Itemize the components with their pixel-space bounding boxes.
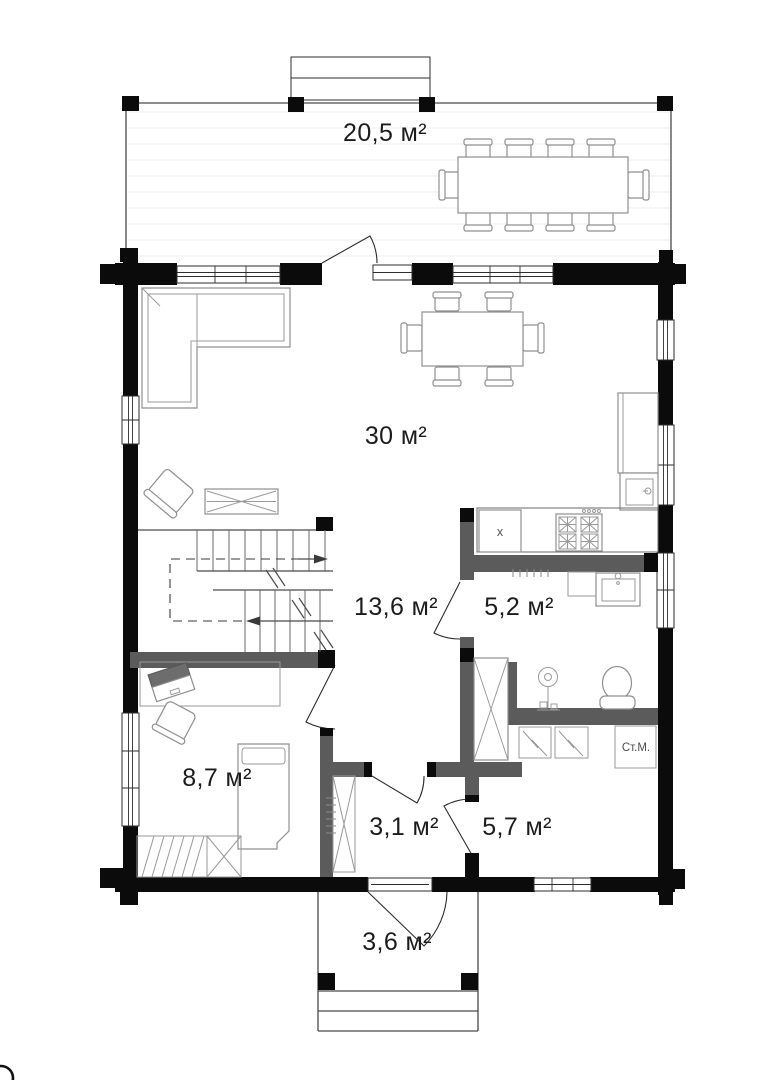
tall-cabinet bbox=[618, 393, 658, 473]
kitchen-unit-label: x bbox=[497, 525, 504, 539]
window bbox=[657, 553, 674, 628]
entry-closet bbox=[333, 776, 355, 872]
bathroom-fixtures bbox=[513, 569, 640, 710]
kitchen-back-wall bbox=[474, 555, 658, 572]
entry-left-wall bbox=[320, 728, 333, 877]
water-heater-icon bbox=[555, 727, 588, 758]
entry-door-swing bbox=[372, 776, 424, 803]
window bbox=[657, 425, 674, 505]
shower-column-icon bbox=[537, 668, 560, 711]
room-label-entry: 3,1 м² bbox=[369, 813, 439, 841]
bathroom-bottom-wall bbox=[517, 708, 658, 725]
washing-machine-label: Ст.М. bbox=[622, 742, 650, 754]
stair-break-marks bbox=[266, 568, 333, 650]
window bbox=[657, 320, 674, 360]
utility-room: Ст.М. bbox=[519, 726, 656, 768]
room-label-living: 30 м² bbox=[365, 422, 427, 450]
water-heater-icon bbox=[519, 727, 551, 758]
terrace-door-swing bbox=[322, 236, 412, 280]
hall-entry-wall bbox=[427, 762, 522, 777]
staircase bbox=[138, 517, 333, 652]
washbasin bbox=[568, 572, 640, 606]
terrace-steps bbox=[291, 57, 430, 100]
window bbox=[122, 713, 139, 826]
bed bbox=[238, 744, 289, 849]
table-top bbox=[422, 312, 523, 366]
closet-crossed bbox=[207, 836, 241, 877]
living-dining-table bbox=[401, 292, 544, 386]
toilet-icon bbox=[600, 667, 635, 710]
window bbox=[122, 396, 139, 444]
chair-back-icon bbox=[439, 170, 445, 200]
room-label-bathroom: 5,2 м² bbox=[484, 593, 554, 621]
porch bbox=[318, 892, 478, 1031]
corner-sofa bbox=[142, 288, 290, 408]
windows bbox=[122, 266, 674, 891]
room-label-bedroom: 8,7 м² bbox=[182, 764, 252, 792]
logo-partial-icon bbox=[0, 1066, 13, 1080]
hall-wardrobe bbox=[474, 658, 508, 760]
washing-machine: Ст.М. bbox=[615, 726, 656, 768]
window bbox=[177, 266, 280, 283]
laptop-icon bbox=[148, 663, 195, 702]
kitchen-sink-unit bbox=[620, 473, 658, 510]
living-room-furniture bbox=[142, 288, 658, 519]
kitchen-unit-box: x bbox=[479, 510, 521, 552]
closet-hatched bbox=[137, 836, 207, 877]
room-label-hallway: 13,6 м² bbox=[354, 593, 438, 621]
table-top bbox=[458, 157, 628, 213]
room-label-utility: 5,7 м² bbox=[482, 813, 552, 841]
room-label-porch: 3,6 м² bbox=[362, 928, 432, 956]
wardrobe-wall bbox=[460, 662, 474, 762]
armchair bbox=[143, 467, 196, 520]
chair-icon bbox=[628, 172, 644, 198]
coffee-table bbox=[205, 489, 278, 514]
stair-treads-upper bbox=[197, 530, 333, 571]
utility-door-swing bbox=[444, 799, 472, 855]
porch-steps bbox=[318, 991, 478, 1031]
floor-plan-page: x bbox=[0, 0, 783, 1080]
under-stairs-wall bbox=[130, 652, 318, 668]
room-label-terrace: 20,5 м² bbox=[343, 119, 427, 147]
bedroom-door-swing bbox=[306, 665, 335, 729]
chair-back-icon bbox=[643, 170, 649, 200]
kitchen: x bbox=[477, 508, 658, 552]
terrace-dining-table bbox=[439, 139, 649, 231]
floor-plan-canvas: x bbox=[0, 0, 783, 1080]
chairs-top bbox=[464, 139, 615, 158]
stove-icon bbox=[556, 510, 602, 552]
window bbox=[534, 878, 591, 891]
terrace bbox=[122, 57, 673, 262]
chairs-bottom bbox=[464, 212, 615, 231]
window bbox=[453, 266, 553, 283]
